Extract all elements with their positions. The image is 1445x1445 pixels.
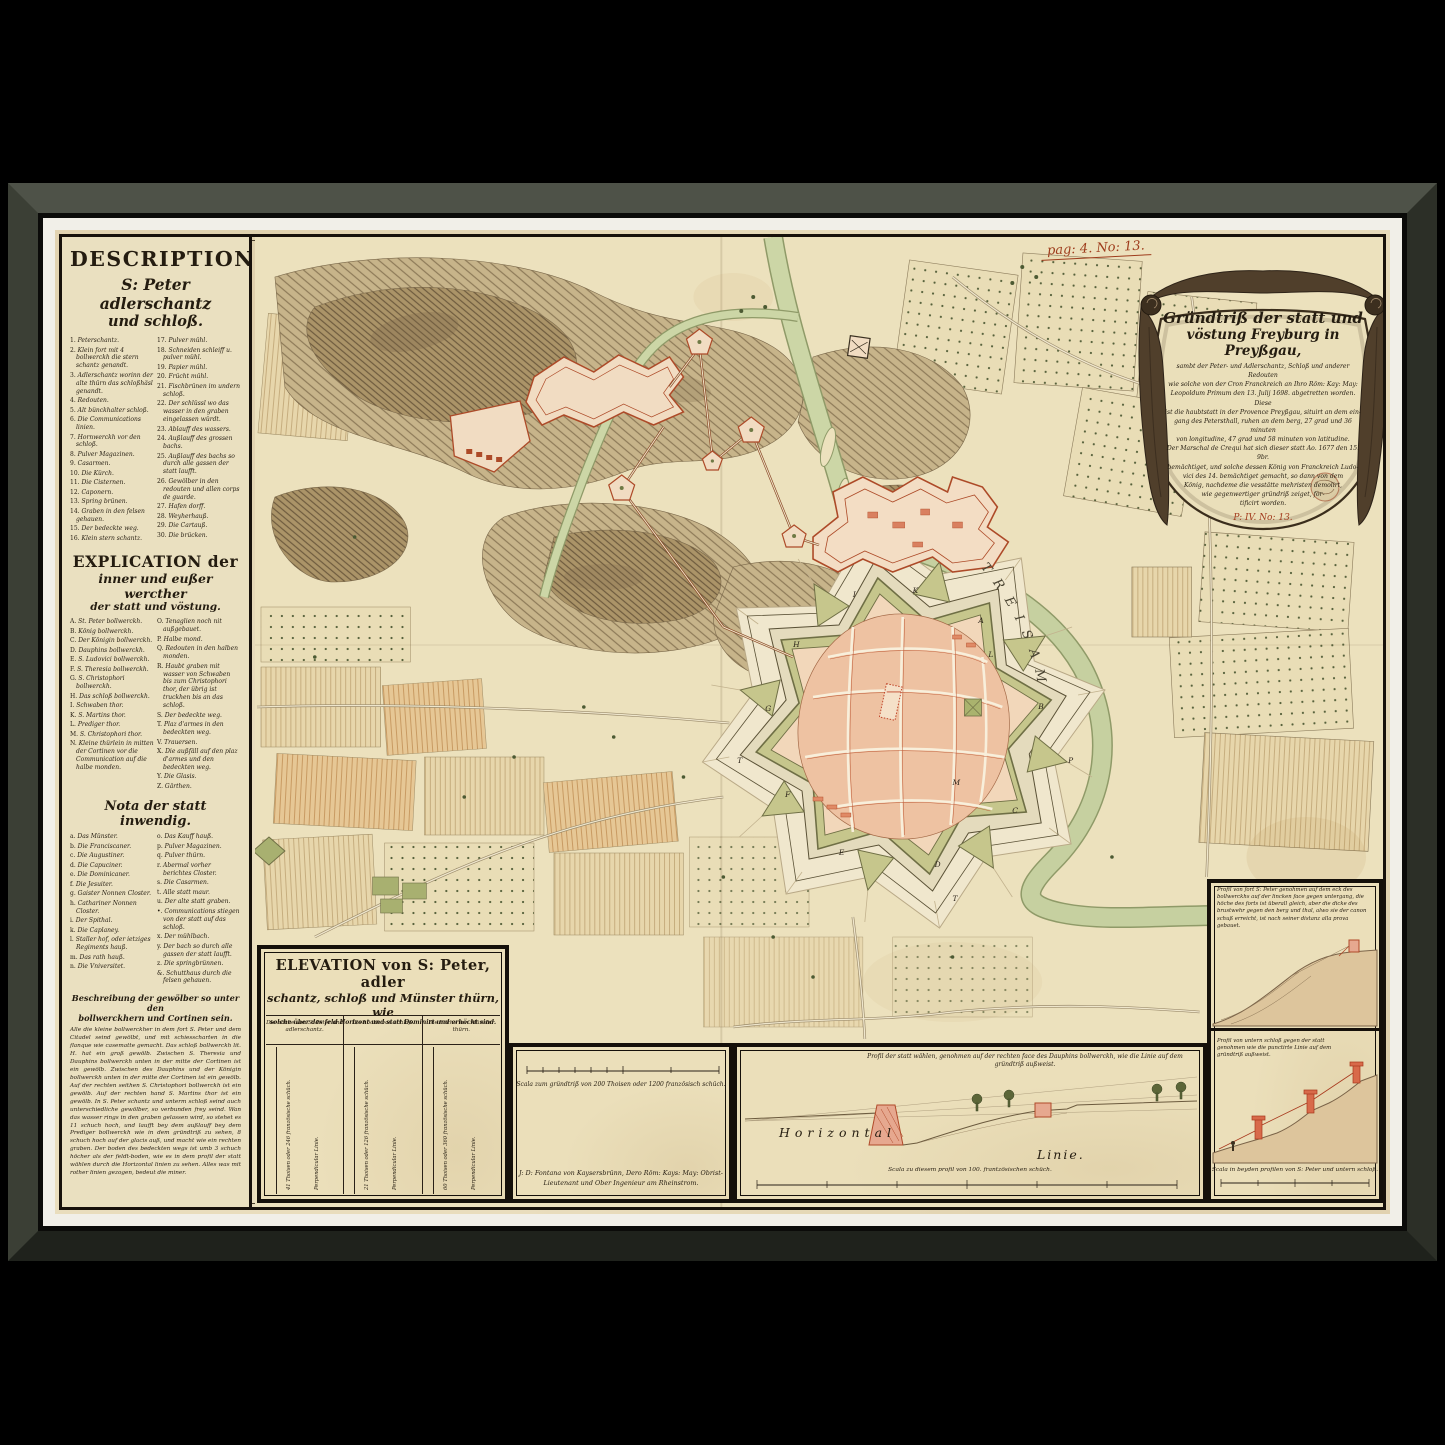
profile-drawing xyxy=(737,1047,1203,1199)
fort-peter-profile: Profil von fort S: Peter genohmen auf de… xyxy=(1211,883,1379,1031)
elevation-column-header: Die höche von Münster thürn. xyxy=(422,1016,500,1044)
legend-item: 29. Die Cartauß. xyxy=(157,522,241,530)
title-cartouche: Gründtriß der statt und vöstung Freyburg… xyxy=(1137,267,1383,535)
legend-item: 26. Gewölber in den redouten und allen c… xyxy=(157,478,241,502)
legend-item: 27. Hafen dorff. xyxy=(157,503,241,511)
legend-item: i. Der Spithal. xyxy=(70,917,154,925)
cartouche-body-line: wie solche von der Cron Franckreich an I… xyxy=(1163,380,1363,389)
elevation-column: 41 Thoisen oder 246 französische schüch.… xyxy=(266,1045,343,1194)
signature-line2: Lieutenant und Ober Ingenieur am Rheinst… xyxy=(513,1179,729,1187)
legend-item: 15. Der bedeckte weg. xyxy=(70,525,154,533)
legend-panel: DESCRIPTION S: Peter adlerschantz und sc… xyxy=(62,237,252,1207)
legend-item: 18. Schneiden schleiff u. pulver mühl. xyxy=(157,347,241,363)
legend-item: 4. Redouten. xyxy=(70,397,154,405)
legend-item: X. Die außfäll auf den plaz d'armes und … xyxy=(157,748,241,772)
vaults-heading: Beschreibung der gewölber so unter denbo… xyxy=(70,993,241,1024)
bastion-letter: E xyxy=(838,848,845,857)
map-scale-bar xyxy=(523,1061,723,1077)
legend-item: L. Prediger thor. xyxy=(70,721,154,729)
legend-item: 19. Papier mühl. xyxy=(157,364,241,372)
legend-item: 2. Klein fort mit 4 bollwerckh die stern… xyxy=(70,347,154,371)
legend-item: S. Der bedeckte weg. xyxy=(157,712,241,720)
cartouche-body-line: Der Marschal de Crequi hat sich dieser s… xyxy=(1163,444,1363,462)
legend-item: 5. Alt bünckhalter schloß. xyxy=(70,407,154,415)
lower-castle-profile: Profil von untern schloß gegen der statt… xyxy=(1211,1034,1379,1199)
legend-item: l. Staller hof, oder ietziges Regiments … xyxy=(70,936,154,952)
legend-item: K. S. Martins thor. xyxy=(70,712,154,720)
legend-item: h. Cathariner Nonnen Closter. xyxy=(70,900,154,916)
legend-item: 30. Die brücken. xyxy=(157,532,241,540)
cartouche-body-line: vici des 14. bemächtiget gemacht, so dan… xyxy=(1163,472,1363,481)
description-subtitle2: und schloß. xyxy=(70,313,241,330)
legend-item: A. St. Peter bollwerckh. xyxy=(70,618,154,626)
screenshot: DESCRIPTION S: Peter adlerschantz und sc… xyxy=(0,0,1445,1445)
fort-peter-profile-drawing xyxy=(1211,936,1379,1028)
bastion-letter: K xyxy=(912,586,919,595)
legend-item: g. Gaister Nonnen Closter. xyxy=(70,890,154,898)
lower-castle-profile-title: Profil von untern schloß gegen der statt… xyxy=(1217,1038,1339,1059)
legend-item: 12. Caponern. xyxy=(70,489,154,497)
legend-item: Q. Redouten in den halben monden. xyxy=(157,645,241,661)
map-title-line1: Gründtriß der statt und xyxy=(1163,309,1363,327)
horizontal-label: Horizontal xyxy=(779,1125,896,1140)
legend-item: c. Die Augustiner. xyxy=(70,852,154,860)
bastion-letter: F xyxy=(784,790,791,799)
map-title-line2: vöstung Freyburg in Preyßgau, xyxy=(1163,327,1363,359)
legend-item: 22. Der schlüssl wo das wasser in den gr… xyxy=(157,400,241,424)
elevation-column: 21 Thoisen oder 126 französische schüch.… xyxy=(343,1045,421,1194)
frame-inner-lip: DESCRIPTION S: Peter adlerschantz und sc… xyxy=(38,213,1407,1231)
description-subtitle: S: Peter adlerschantz xyxy=(70,275,241,313)
legend-item: a. Das Münster. xyxy=(70,833,154,841)
legend-item: 6. Die Communications linien. xyxy=(70,416,154,432)
cartouche-body-line: wie gegenwertiger gründriß zeiget, for- xyxy=(1163,490,1363,499)
cartouche-body-line: Leopoldum Primum den 13. Julij 1698. abg… xyxy=(1163,389,1363,407)
cartouche-red-mark: P: IV. No: 13. xyxy=(1163,513,1363,523)
legend-item: 9. Casarmen. xyxy=(70,460,154,468)
explication-list: A. St. Peter bollwerckh. B. König bollwe… xyxy=(70,618,241,792)
fort-profiles-panel: Profil von fort S: Peter genohmen auf de… xyxy=(1207,879,1383,1203)
legend-item: f. Die Jesuiter. xyxy=(70,881,154,889)
legend-item: O. Tenaglien noch nit außgebauet. xyxy=(157,618,241,634)
legend-item: 17. Pulver mühl. xyxy=(157,337,241,345)
mat-board: DESCRIPTION S: Peter adlerschantz und sc… xyxy=(43,218,1402,1226)
cartouche-text: Gründtriß der statt und vöstung Freyburg… xyxy=(1163,309,1363,523)
vaults-paragraph: Alle die kleine bollwerckher in dem fort… xyxy=(70,1027,241,1179)
legend-item: 24. Außlauff des grossen bachs. xyxy=(157,435,241,451)
elevation-column: 60 Thoisen oder 360 französische schüch.… xyxy=(422,1045,500,1194)
legend-item: P. Halbe mond. xyxy=(157,636,241,644)
cartouche-body-line: sambt der Peter- und Adlerschantz, Schlo… xyxy=(1163,362,1363,380)
legend-item: u. Der alte statt graben. xyxy=(157,898,241,906)
cartouche-body-line: tificirt worden. xyxy=(1163,499,1363,508)
cartouche-body-line: König, nachdeme die vesstätte mehristen … xyxy=(1163,481,1363,490)
bastion-letter: M xyxy=(952,778,961,787)
cartouche-body-line: gang des Petersthall, ruhen an dem berg,… xyxy=(1163,417,1363,435)
elevation-table-body: 41 Thoisen oder 246 französische schüch.… xyxy=(266,1045,500,1194)
legend-item: 3. Adlerschantz worinn der alte thürn da… xyxy=(70,372,154,396)
legend-item: y. Der bach so durch alle gassen der sta… xyxy=(157,943,241,959)
legend-item: p. Pulver Magazinen. xyxy=(157,843,241,851)
bastion-letter: P xyxy=(1067,756,1074,765)
legend-item: 14. Graben in den felsen gehauen. xyxy=(70,508,154,524)
map-area: A B C D E F G H I K xyxy=(255,237,1383,1207)
legend-item: 10. Die Kürch. xyxy=(70,470,154,478)
legend-item: t. Alle statt maur. xyxy=(157,889,241,897)
legend-item: o. Das Kauff hauß. xyxy=(157,833,241,841)
description-title: DESCRIPTION xyxy=(70,247,241,271)
legend-item: N. Kleine thürlein in mitten der Cortine… xyxy=(70,740,154,772)
scale-signature-panel: Scala zum gründtriß von 200 Thoisen oder… xyxy=(509,1043,733,1203)
measure-label: 41 Thoisen oder 246 französische schüch. xyxy=(286,1040,292,1190)
perpendicular-label: Perpendicular Linie. xyxy=(392,1040,398,1190)
legend-item: F. S. Theresia bollwerckh. xyxy=(70,666,154,674)
profiles-scale-bar xyxy=(1219,1175,1371,1189)
linie-label: Linie. xyxy=(1037,1147,1085,1162)
legend-item: 7. Hornwerckh vor den schloß. xyxy=(70,434,154,450)
bastion-letter: D xyxy=(934,860,941,869)
elevation-column-header: Die höche von S: Peter und adlerschantz. xyxy=(266,1016,343,1044)
legend-item: k. Die Caplaney. xyxy=(70,927,154,935)
elevation-column-header: Die höche von schloß. xyxy=(343,1016,421,1044)
legend-item: x. Der mühlbach. xyxy=(157,933,241,941)
legend-item: 8. Pulver Magazinen. xyxy=(70,451,154,459)
legend-item: r. Abermal vorher berichtes Closter. xyxy=(157,862,241,878)
legend-item: 13. Spring brünen. xyxy=(70,498,154,506)
lower-castle-profile-drawing xyxy=(1211,1061,1379,1165)
legend-item: G. S. Christophori bollwerckh. xyxy=(70,675,154,691)
legend-item: b. Die Franciscaner. xyxy=(70,843,154,851)
perpendicular-label: Perpendicular Linie. xyxy=(471,1040,477,1190)
legend-item: 28. Weyherhauß. xyxy=(157,513,241,521)
legend-item: B. König bollwerckh. xyxy=(70,628,154,636)
legend-item: q. Pulver thürn. xyxy=(157,852,241,860)
nota-list: a. Das Münster. b. Die Franciscaner. c. … xyxy=(70,833,241,987)
legend-item: 11. Die Cisternen. xyxy=(70,479,154,487)
profile-scale-text: Scala zu diesem profil von 100. frantzös… xyxy=(737,1167,1203,1173)
measure-line xyxy=(433,1047,434,1194)
legend-item: z. Die springbrünnen. xyxy=(157,960,241,968)
legend-item: R. Haubt graben mit wasser von Schwaben … xyxy=(157,663,241,710)
legend-item: M. S. Christophori thor. xyxy=(70,731,154,739)
perpendicular-label: Perpendicular Linie. xyxy=(314,1040,320,1190)
bastion-letter: C xyxy=(1012,806,1018,815)
map-scale-text: Scala zum gründtriß von 200 Thoisen oder… xyxy=(513,1081,729,1088)
legend-item: e. Die Dominicaner. xyxy=(70,871,154,879)
legend-item: 23. Ablauff des wassers. xyxy=(157,426,241,434)
elevation-panel: ELEVATION von S: Peter, adler schantz, s… xyxy=(257,945,509,1203)
legend-item: &. Schutthaus durch die felsen gehauen. xyxy=(157,970,241,986)
legend-item: C. Der Königin bollwerckh. xyxy=(70,637,154,645)
bastion-letter: H xyxy=(792,640,800,649)
signature-line1: J: D: Fontana von Kaysersbrünn, Dero Röm… xyxy=(513,1169,729,1177)
legend-item: n. Die Vniversitet. xyxy=(70,963,154,971)
description-list: 1. Peterschantz. 2. Klein fort mit 4 bol… xyxy=(70,337,241,544)
legend-item: V. Trauersen. xyxy=(157,739,241,747)
profiles-scale-text: Scala in beyden profilen von S: Peter un… xyxy=(1211,1167,1379,1173)
bastion-letter: L xyxy=(987,650,993,659)
legend-item: •. Communications stiegen von der statt … xyxy=(157,908,241,932)
cartouche-body-line: bemächtiget, und solche dessen König von… xyxy=(1163,463,1363,472)
measure-label: 21 Thoisen oder 126 französische schüch. xyxy=(364,1040,370,1190)
explication-subtitle: inner und eußer wercther xyxy=(70,571,241,601)
legend-item: I. Schwaben thor. xyxy=(70,702,154,710)
bastion-letter: B xyxy=(1037,702,1044,711)
bastion-letter: A xyxy=(977,616,984,625)
legend-item: 16. Klein stern schantz. xyxy=(70,535,154,543)
cartouche-body: sambt der Peter- und Adlerschantz, Schlo… xyxy=(1163,362,1363,508)
explication-subtitle2: der statt und vöstung. xyxy=(70,601,241,613)
cartouche-body-line: von longitudine, 47 grad und 58 minuten … xyxy=(1163,435,1363,444)
cartouche-body-line: ist die haubtstatt in der Provence Preyß… xyxy=(1163,408,1363,417)
elevation-header-row: Die höche von S: Peter und adlerschantz.… xyxy=(266,1015,500,1045)
measure-label: 60 Thoisen oder 360 französische schüch. xyxy=(443,1040,449,1190)
map-sheet: DESCRIPTION S: Peter adlerschantz und sc… xyxy=(55,230,1390,1214)
measure-line xyxy=(354,1047,355,1194)
legend-item: 25. Außlauff des bachs so durch alle gas… xyxy=(157,453,241,477)
legend-item: 1. Peterschantz. xyxy=(70,337,154,345)
legend-item: m. Das rath hauß. xyxy=(70,954,154,962)
bastion-letter: G xyxy=(765,704,771,713)
legend-item: D. Dauphins bollwerckh. xyxy=(70,647,154,655)
legend-item: E. S. Ludovici bollwerckh. xyxy=(70,656,154,664)
legend-item: Z. Gärthen. xyxy=(157,783,241,791)
fort-peter-profile-title: Profil von fort S: Peter genohmen auf de… xyxy=(1217,887,1373,930)
measure-line xyxy=(276,1047,277,1194)
legend-item: H. Das schloß bollwerckh. xyxy=(70,693,154,701)
legend-item: 21. Fischbrünen im undern schloß. xyxy=(157,383,241,399)
elevation-title: ELEVATION von S: Peter, adler xyxy=(261,957,505,991)
legend-item: s. Die Casarmen. xyxy=(157,879,241,887)
framed-map-print: DESCRIPTION S: Peter adlerschantz und sc… xyxy=(8,183,1437,1261)
legend-item: Y. Die Glasis. xyxy=(157,773,241,781)
sheet-border: DESCRIPTION S: Peter adlerschantz und sc… xyxy=(59,234,1386,1210)
legend-item: d. Die Capuciner. xyxy=(70,862,154,870)
rampart-profile-panel: Profil der statt wählen, genohmen auf de… xyxy=(733,1043,1207,1203)
explication-title: EXPLICATION der xyxy=(70,552,241,571)
legend-item: 20. Frücht mühl. xyxy=(157,373,241,381)
legend-item: T. Plaz d'armes in den bedeckten weg. xyxy=(157,721,241,737)
nota-title: Nota der statt inwendig. xyxy=(70,799,241,829)
